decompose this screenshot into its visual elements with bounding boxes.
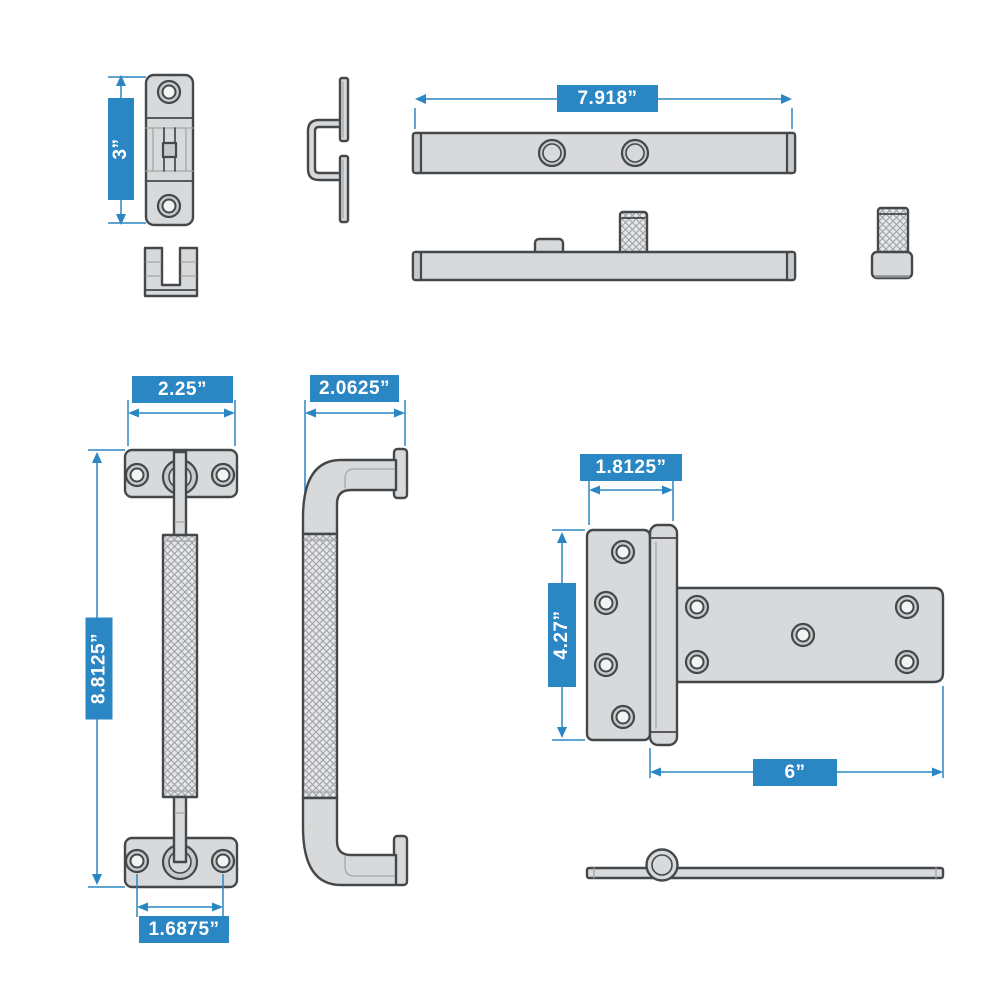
dim-label-bar-length: 7.918” <box>557 85 658 112</box>
t-hinge-front-view <box>545 445 955 890</box>
dim-label-hinge-strap-length: 6” <box>753 759 837 786</box>
keeper-bracket-side-view <box>295 75 355 225</box>
dim-label-handle-depth: 2.0625” <box>310 375 399 402</box>
t-hinge-side-view <box>587 850 943 881</box>
handle-side-view <box>295 368 415 950</box>
dim-label-handle-width: 2.25” <box>132 376 233 403</box>
dim-label-handle-height: 8.8125” <box>86 618 113 720</box>
thumb-knob <box>865 200 920 285</box>
dim-label-latch-height: 3” <box>108 98 134 200</box>
latch-keeper <box>138 240 204 300</box>
dim-label-hinge-plate-height: 4.27” <box>548 583 576 687</box>
diagram-canvas: 3” 7.918” <box>0 0 1000 1000</box>
dim-label-hinge-plate-width: 1.8125” <box>580 454 682 481</box>
dim-label-handle-hole-spacing: 1.6875” <box>139 916 229 943</box>
slide-bar-side-view <box>405 205 805 285</box>
